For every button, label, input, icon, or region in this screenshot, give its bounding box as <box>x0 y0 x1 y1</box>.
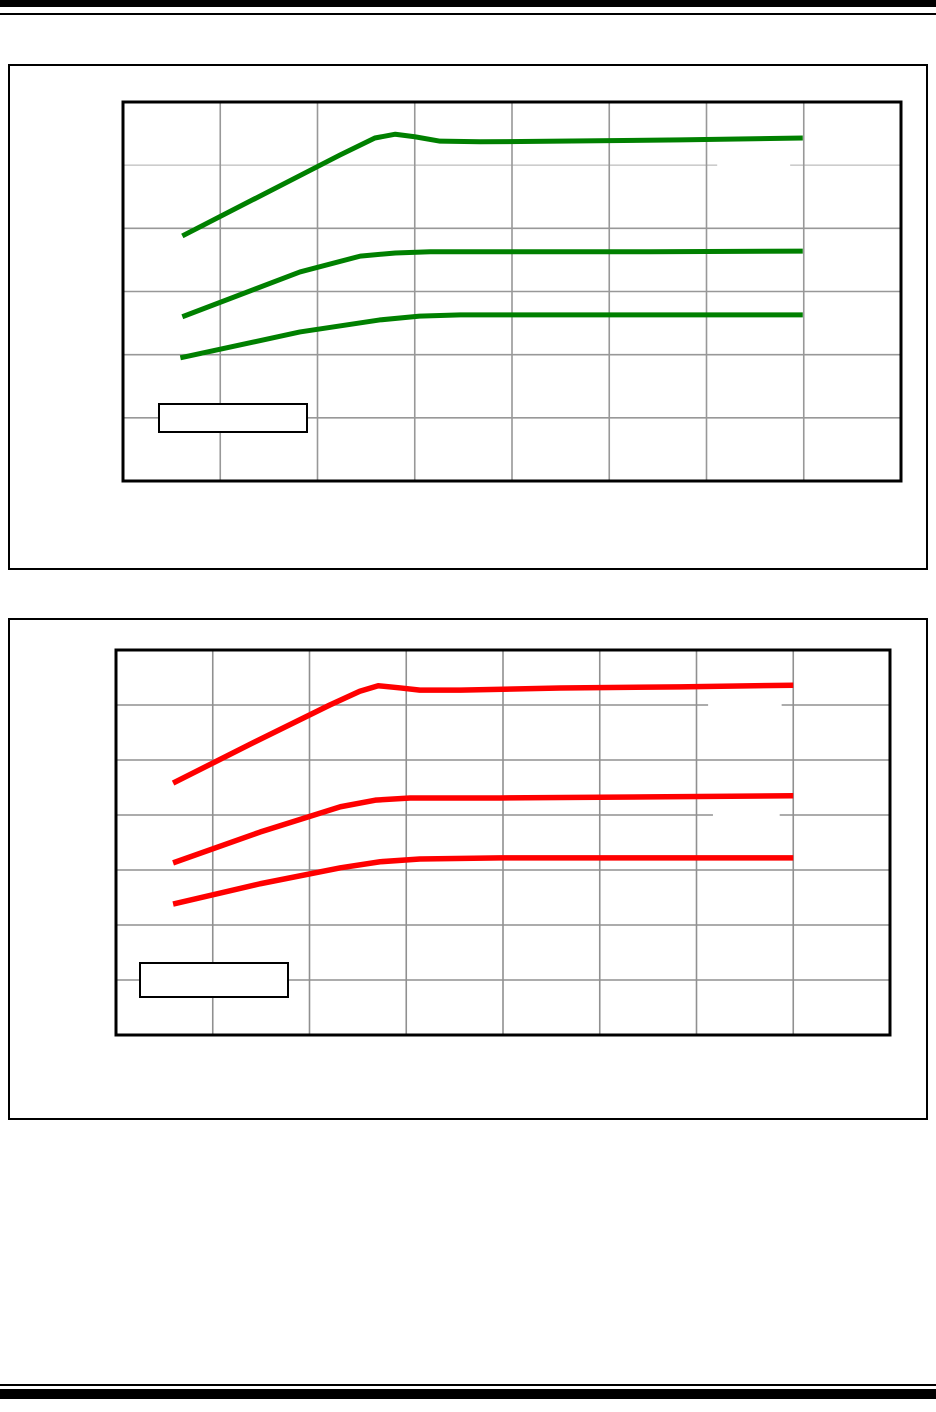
chart-2-legend-box <box>139 962 289 998</box>
chart-1-legend-box <box>158 403 308 433</box>
header-rule-thick <box>0 0 936 7</box>
footer-rule-thin <box>0 1384 936 1386</box>
page <box>0 0 936 1412</box>
footer-rule-thick <box>0 1389 936 1399</box>
header-rule-thin <box>0 13 936 15</box>
